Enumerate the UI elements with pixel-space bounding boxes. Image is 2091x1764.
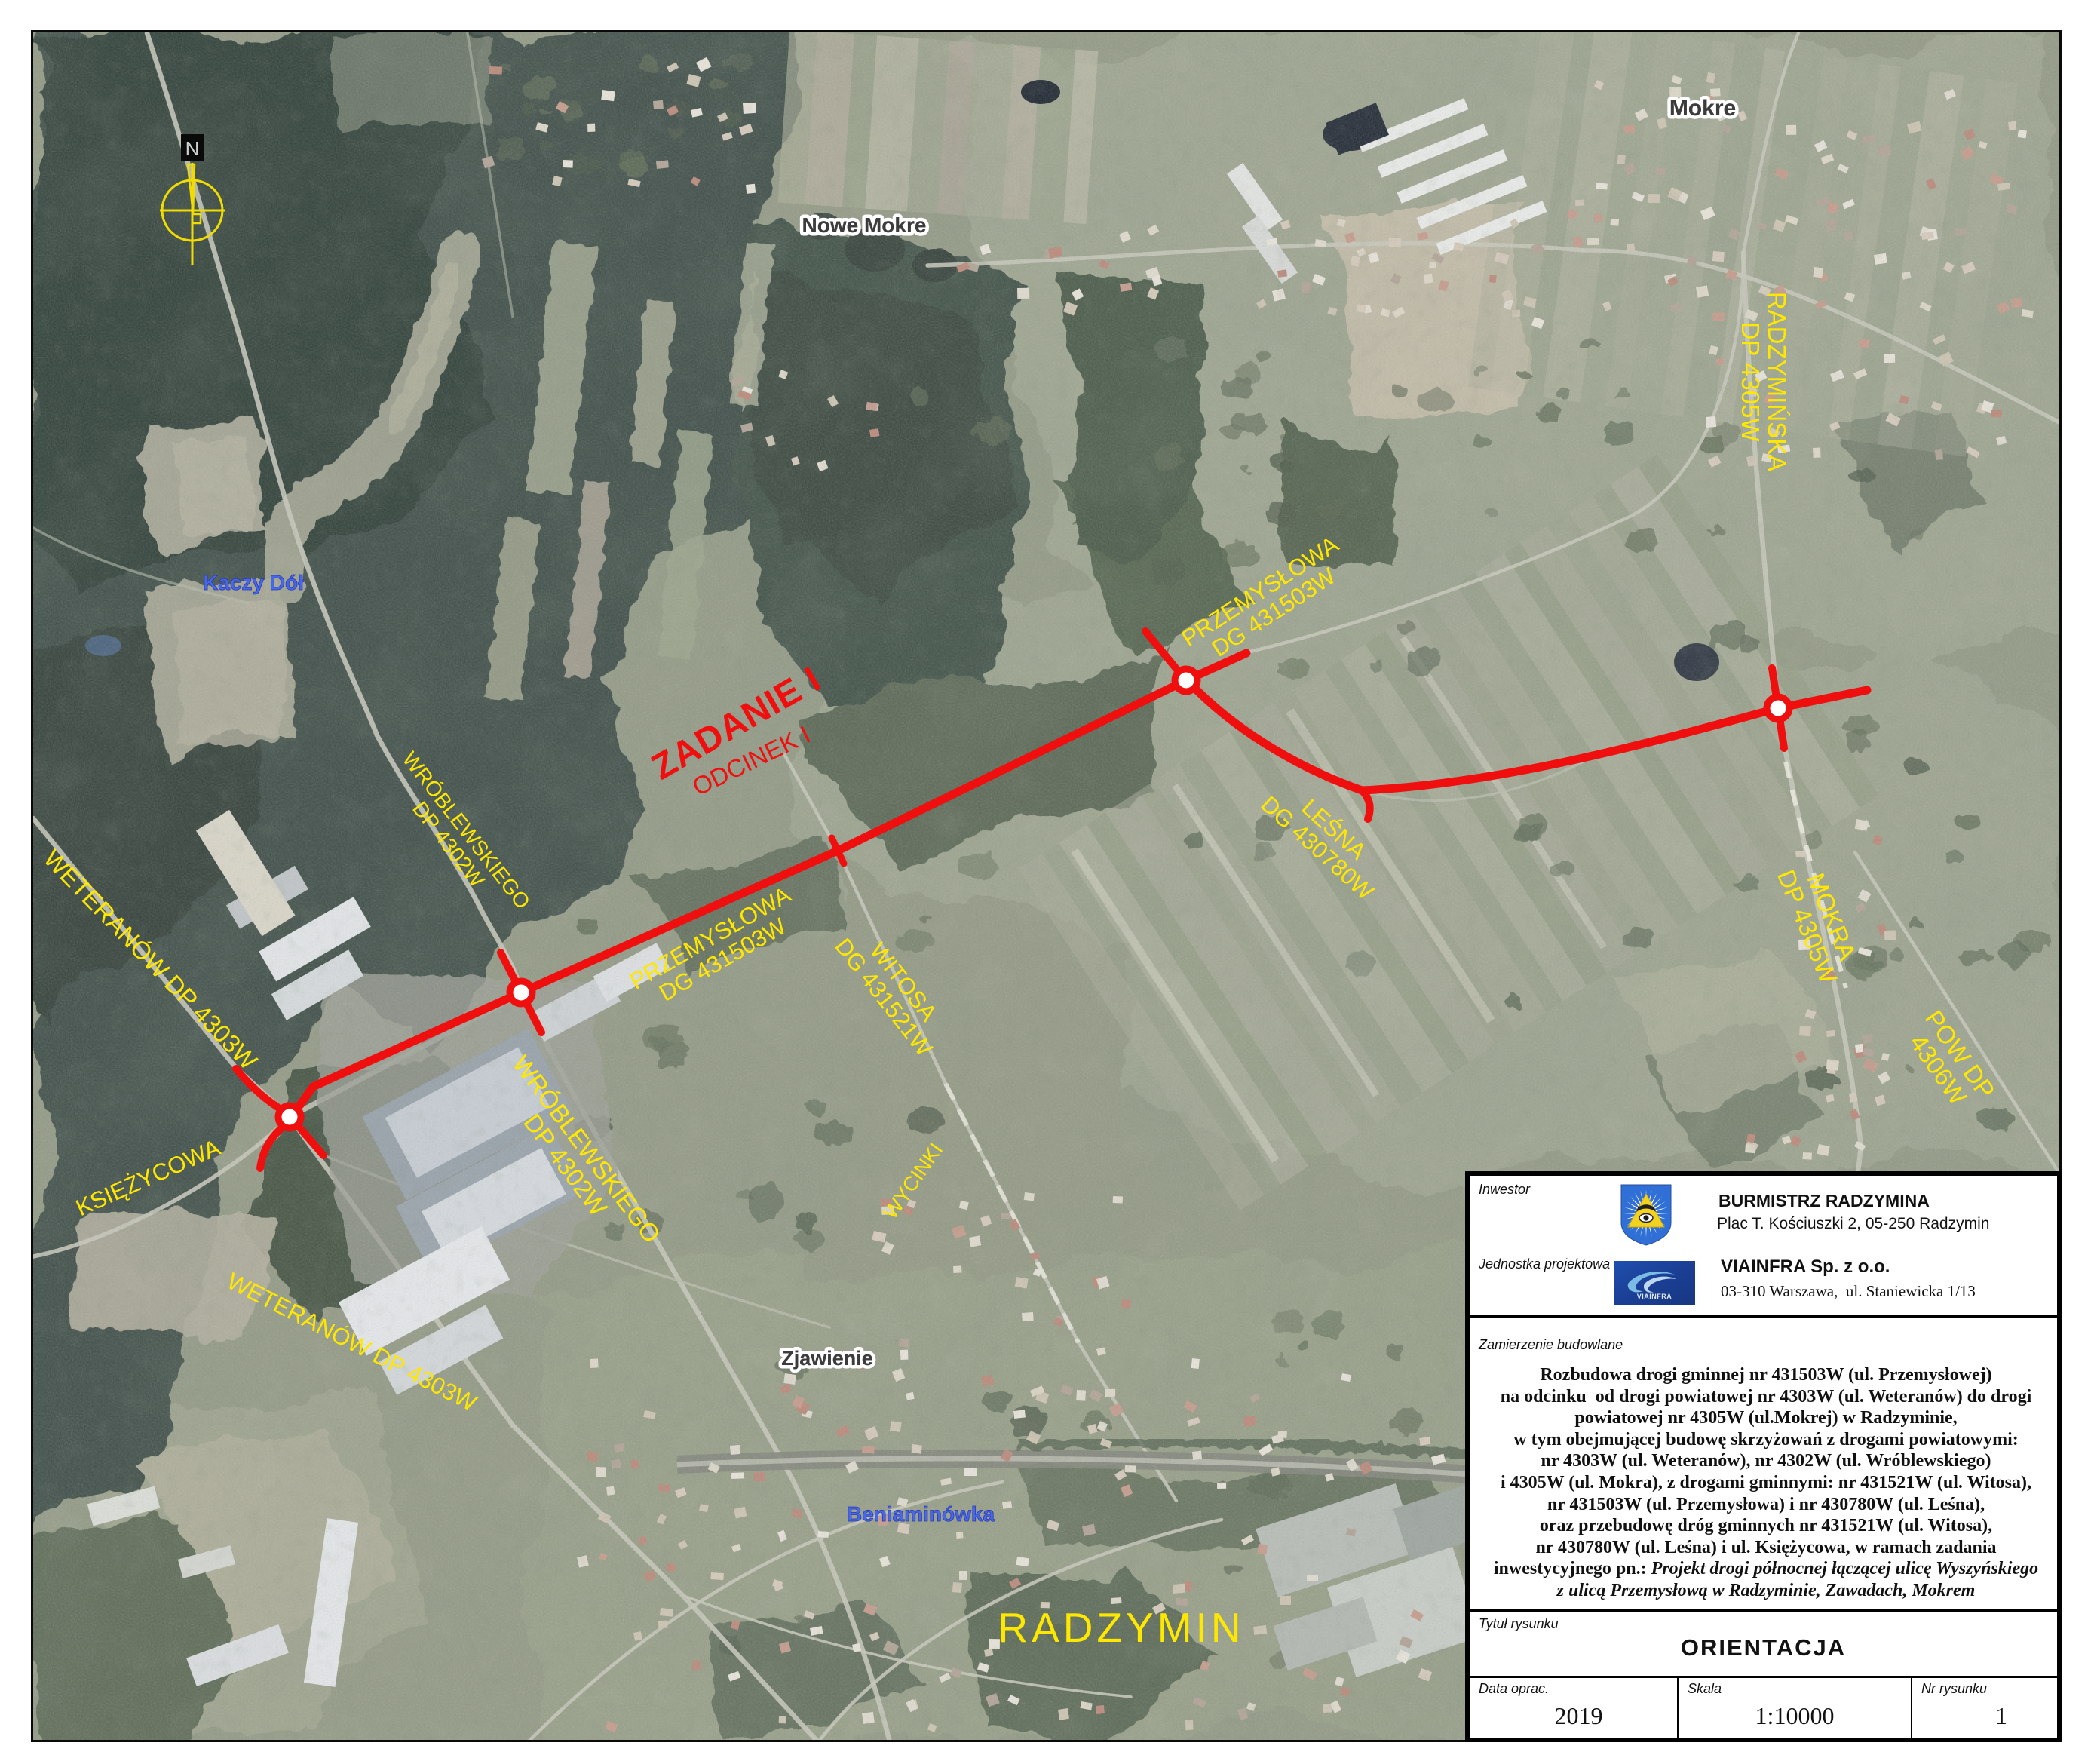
svg-text:RADZYMIN: RADZYMIN [998,1604,1244,1651]
svg-text:WYCINKI: WYCINKI [879,1139,948,1223]
svg-text:Kaczy Dół: Kaczy Dół [203,571,304,594]
svg-text:VIAINFRA: VIAINFRA [1637,1293,1672,1300]
svg-text:WRÓBLEWSKIEGO: WRÓBLEWSKIEGO [398,747,535,913]
svg-text:Zjawienie: Zjawienie [781,1347,873,1370]
svg-text:DP 4305W: DP 4305W [1737,322,1764,443]
svg-text:RADZYMIŃSKA: RADZYMIŃSKA [1763,292,1791,471]
svg-text:N: N [185,137,200,160]
svg-text:WETERANÓW DP 4303W: WETERANÓW DP 4303W [223,1268,482,1417]
svg-text:WRÓBLEWSKIEGO: WRÓBLEWSKIEGO [507,1050,667,1247]
svg-text:KSIĘŻYCOWA: KSIĘŻYCOWA [72,1134,224,1222]
svg-text:Beniaminówka: Beniaminówka [847,1502,995,1526]
svg-text:WETERANÓW DP 4303W: WETERANÓW DP 4303W [38,844,263,1075]
svg-text:Mokre: Mokre [1669,96,1736,121]
svg-text:Nowe Mokre: Nowe Mokre [802,213,927,237]
